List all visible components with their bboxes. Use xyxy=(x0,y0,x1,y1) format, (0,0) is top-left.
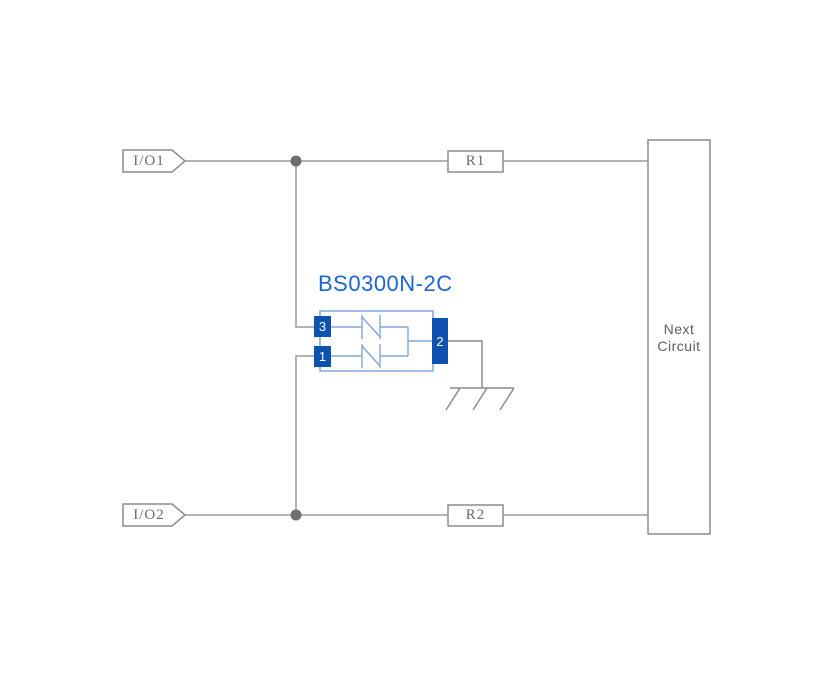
ground-hatch-3 xyxy=(500,388,514,410)
wire-pin2-to-ground xyxy=(448,341,482,388)
pin1-number: 1 xyxy=(314,346,331,367)
pin3-number: 3 xyxy=(314,316,331,337)
component-title: BS0300N-2C xyxy=(318,271,453,297)
wire-junction1-to-pin3 xyxy=(296,161,314,327)
next-circuit-line1: Next xyxy=(648,321,710,338)
next-circuit-label: Next Circuit xyxy=(648,321,710,355)
wire-junction2-to-pin1 xyxy=(296,356,314,515)
schematic-canvas: I/O1 I/O2 R1 R2 BS0300N-2C 3 1 2 Next Ci… xyxy=(0,0,832,675)
io2-port-label: I/O2 xyxy=(123,504,175,526)
ground-hatch-2 xyxy=(473,388,487,410)
io1-port-label: I/O1 xyxy=(123,150,175,172)
pin2-number: 2 xyxy=(432,318,448,364)
resistor-r1-label: R1 xyxy=(448,151,503,172)
resistor-r2-label: R2 xyxy=(448,505,503,526)
next-circuit-line2: Circuit xyxy=(648,338,710,355)
junction-dot-top xyxy=(291,156,302,167)
ground-hatch-1 xyxy=(446,388,460,410)
junction-dot-bottom xyxy=(291,510,302,521)
